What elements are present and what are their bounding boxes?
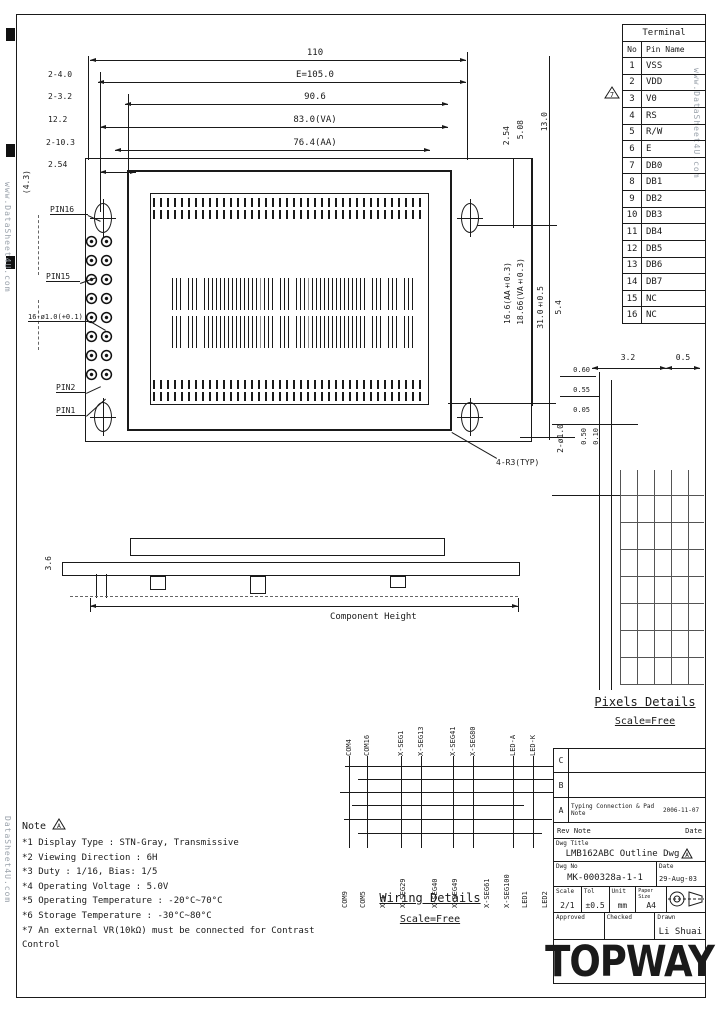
wire-line [344, 819, 552, 820]
note-ref-triangle-icon: 7 [604, 86, 620, 99]
revision-row-b: B [554, 773, 705, 797]
pin-hole-dia-label: 16-ø1.0(+0.1) [28, 313, 83, 321]
table-row: 16NC [623, 307, 705, 323]
tol-cell: Tol ±0.5 [582, 887, 610, 911]
wire-line [513, 756, 514, 848]
wire-label: X-SEG41 [449, 698, 457, 756]
table-row: 12DB5 [623, 241, 705, 258]
table-row: 9DB2 [623, 191, 705, 208]
wire-line [358, 833, 542, 834]
pin-no: 2 [623, 75, 642, 91]
note-item: *7 An external VR(10kΩ) must be connecte… [22, 924, 352, 953]
extension-line [448, 403, 556, 404]
note-item: *1 Display Type : STN-Gray, Transmissive [22, 836, 352, 851]
dimension-line [560, 396, 600, 397]
wiring-details-title: Wiring Details [360, 892, 500, 905]
dim-label: 0.05 [560, 406, 590, 414]
pixels-details-title: Pixels Details [585, 696, 705, 709]
wire-label: X-SEG13 [417, 698, 425, 756]
dim-label: 2-10.3 [46, 138, 75, 147]
terminal-table: Terminal No Pin Name 1VSS 2VDD 3V0 4RS 5… [622, 24, 706, 324]
notes-list: *1 Display Type : STN-Gray, Transmissive… [22, 836, 352, 953]
note-item: *3 Duty : 1/16, Bias: 1/5 [22, 865, 352, 880]
unit-label: Unit [612, 888, 626, 895]
paper-size-label: Paper Size [638, 888, 666, 900]
wire-line [367, 756, 368, 848]
pixel-grid-line [611, 380, 612, 690]
projection-cell [667, 887, 705, 911]
mounting-hole [94, 203, 112, 233]
character-row-1 [168, 278, 414, 310]
pin-name: VDD [642, 77, 662, 87]
dimension-line [592, 368, 666, 369]
third-angle-projection-icon [667, 889, 705, 909]
terminal-table-header: No Pin Name [623, 42, 705, 58]
drawn-cell: Drawn Li Shuai [655, 913, 705, 939]
dim-label: 12.2 [48, 115, 67, 124]
rev-date: 2006-11-07 [663, 807, 705, 814]
revision-row-a: A Typing Connection & Pad Note 2006-11-0… [554, 798, 705, 823]
wire-line [349, 756, 350, 848]
svg-text:7: 7 [610, 91, 614, 99]
pin-name: R/W [642, 127, 662, 137]
wire-label: COM4 [345, 698, 353, 756]
dwg-no-cell: Dwg No MK-000328a-1-1 [554, 862, 656, 886]
leader-line [46, 281, 80, 282]
pin-no: 9 [623, 191, 642, 207]
note-item: *2 Viewing Direction : 6H [22, 851, 352, 866]
rev-letter: B [554, 773, 569, 796]
note-item: *6 Storage Temperature : -30°C~80°C [22, 909, 352, 924]
svg-text:A: A [686, 852, 690, 859]
mounting-hole [461, 203, 479, 233]
pin16-label: PIN16 [50, 205, 74, 214]
paper-size-value: A4 [646, 901, 656, 910]
rev-note [569, 773, 705, 796]
wire-line [352, 805, 524, 806]
date-value: 29-Aug-03 [659, 875, 697, 883]
side-view-component [150, 576, 166, 590]
leader-line [50, 214, 88, 215]
wire-line [345, 766, 557, 767]
dim-label: 18.66(VA±0.3) [516, 258, 525, 325]
pin-name: DB3 [642, 210, 662, 220]
pin-no: 14 [623, 274, 642, 290]
centerline [70, 596, 518, 597]
pin-no: 5 [623, 125, 642, 141]
rev-note-header: Rev Note [557, 827, 591, 835]
pin-name: DB1 [642, 177, 662, 187]
side-view-component [390, 576, 406, 588]
zebra-stripes [153, 392, 424, 401]
paper-cell: Paper Size A4 [636, 887, 667, 911]
dim-label: 3.6 [44, 556, 53, 570]
dimension-line [100, 127, 448, 128]
rev-letter: C [554, 749, 569, 772]
checked-label: Checked [607, 914, 632, 921]
rev-note [569, 749, 705, 772]
dimension-line [90, 60, 466, 61]
dim-value: 83.0(VA) [255, 115, 375, 125]
dim-label: 31.0±0.5 [536, 286, 545, 329]
extension-line [38, 215, 39, 275]
pin-name: DB4 [642, 227, 662, 237]
drawn-name: Li Shuai [659, 927, 702, 937]
wire-label: LED-A [509, 698, 517, 756]
logo-row: TOPWAY [554, 940, 705, 983]
wire-label: X-SEG100 [503, 846, 511, 908]
dimension-line [532, 158, 533, 406]
pin-name: NC [642, 294, 657, 304]
extension-line [38, 300, 39, 350]
zebra-stripes [153, 210, 424, 219]
table-row: 11DB4 [623, 224, 705, 241]
scale-label: Scale [556, 888, 574, 895]
date-label: Date [659, 863, 673, 870]
registration-mark [6, 144, 15, 157]
pin-name: DB0 [642, 161, 662, 171]
pin-name: DB7 [642, 277, 662, 287]
pin-no: 10 [623, 208, 642, 224]
dim-label: 0.5 [666, 353, 700, 362]
dim-label: (4.3) [22, 170, 31, 194]
extension-line [477, 225, 557, 226]
wire-label: LED2 [541, 846, 549, 908]
table-row: 5R/W [623, 125, 705, 142]
table-row: 15NC [623, 291, 705, 308]
pin-name: DB5 [642, 244, 662, 254]
title-block: C B A Typing Connection & Pad Note 2006-… [553, 748, 706, 984]
dim-label: 2-3.2 [48, 92, 72, 101]
pin-no: 7 [623, 158, 642, 174]
pin-pads [84, 232, 114, 384]
note-item: *4 Operating Voltage : 5.0V [22, 880, 352, 895]
extension-line [88, 56, 89, 160]
pixel-grid-line [599, 372, 600, 690]
pin-no: 4 [623, 108, 642, 124]
revision-header: Rev Note Date [554, 823, 705, 839]
pin-name: DB6 [642, 260, 662, 270]
watermark: DataSheet4U.com [3, 816, 12, 946]
dim-label: 16.6(AA±0.3) [503, 262, 512, 324]
pin-name: NC [642, 310, 657, 320]
pin-no: 15 [623, 291, 642, 307]
wire-label: COM16 [363, 698, 371, 756]
leader-line [56, 415, 86, 416]
side-view-glass [130, 538, 445, 556]
pin15-label: PIN15 [46, 272, 70, 281]
wire-label: LED-K [529, 698, 537, 756]
extension-line [467, 52, 468, 160]
dimension-line [513, 158, 514, 228]
terminal-table-title: Terminal [623, 25, 705, 42]
dimension-line [98, 82, 466, 83]
pin-no: 6 [623, 141, 642, 157]
side-view-component [250, 576, 266, 594]
extension-line [518, 598, 519, 612]
scale-row: Scale 2/1 Tol ±0.5 Unit mm Paper Size A4 [554, 887, 705, 912]
wire-line [340, 792, 558, 793]
mounting-hole [461, 402, 479, 432]
dim-value: 90.6 [255, 92, 375, 102]
pin2-label: PIN2 [56, 383, 75, 392]
dim-label: 0.60 [560, 366, 590, 374]
col-no: No [623, 42, 642, 57]
table-row: 3V0 [623, 91, 705, 108]
dimension-line [552, 424, 638, 425]
dim-label: 13.0 [540, 112, 549, 131]
rev-letter: A [554, 798, 569, 822]
pin-name: V0 [642, 94, 657, 104]
dim-value: 110 [255, 48, 375, 58]
corner-radius-label: 4-R3(TYP) [496, 458, 539, 467]
side-view-pin [96, 574, 97, 598]
dim-label: 2.54 [48, 160, 67, 169]
pin-name: E [642, 144, 651, 154]
table-row: 2VDD [623, 75, 705, 92]
zebra-stripes [153, 198, 424, 207]
wire-line [358, 779, 556, 780]
revision-row-c: C [554, 749, 705, 773]
pin-no: 8 [623, 174, 642, 190]
dim-label: 2-4.0 [48, 70, 72, 79]
watermark: www.DataSheet4U.com [3, 182, 12, 342]
leader-line [28, 321, 92, 322]
dimension-line [115, 150, 430, 151]
pin-name: DB2 [642, 194, 662, 204]
pin-no: 12 [623, 241, 642, 257]
dwg-no: MK-000328a-1-1 [567, 873, 643, 883]
scale-value: 2/1 [560, 901, 574, 910]
extension-line [90, 598, 91, 612]
rev-note: Typing Connection & Pad Note [569, 803, 663, 817]
dim-label: 2-ø1.0 [556, 424, 565, 453]
character-row-2 [168, 316, 414, 348]
pin-no: 11 [623, 224, 642, 240]
dim-label: 0.55 [560, 386, 590, 394]
approved-cell: Approved [554, 913, 605, 939]
table-row: 14DB7 [623, 274, 705, 291]
pin-no: 16 [623, 307, 642, 323]
wire-label: X-SEG1 [397, 698, 405, 756]
pin1-label: PIN1 [56, 406, 75, 415]
rev-triangle-icon: A [681, 848, 693, 859]
dimension-line [125, 104, 448, 105]
svg-text:A: A [57, 822, 61, 830]
wire-line [473, 756, 474, 848]
date-cell: Date 29-Aug-03 [656, 862, 705, 886]
notes-heading-text: Note [22, 821, 46, 832]
pin-no: 3 [623, 91, 642, 107]
pin-name: RS [642, 111, 657, 121]
tol-label: Tol [584, 888, 595, 895]
notes-heading: Note A [22, 818, 66, 832]
dimension-line [666, 368, 700, 369]
pixel-grid [620, 470, 704, 685]
pixels-details-scale: Scale=Free [585, 716, 705, 727]
col-pin-name: Pin Name [642, 45, 685, 54]
dim-value: 76.4(AA) [255, 138, 375, 148]
tol-value: ±0.5 [585, 901, 604, 910]
wire-label: LED1 [521, 846, 529, 908]
table-row: 10DB3 [623, 208, 705, 225]
dim-label: 2.54 [502, 126, 511, 145]
extension-line [520, 437, 575, 438]
registration-mark [6, 28, 15, 41]
pin-no: 13 [623, 258, 642, 274]
wire-line [421, 756, 422, 848]
dim-value: E=105.0 [255, 70, 375, 80]
dim-label: 5.08 [516, 120, 525, 139]
wire-line [401, 756, 402, 848]
unit-cell: Unit mm [610, 887, 637, 911]
wiring-details-scale: Scale=Free [360, 914, 500, 925]
side-view-pcb [62, 562, 520, 576]
dwg-no-label: Dwg No [556, 863, 578, 870]
table-row: 6E [623, 141, 705, 158]
table-row: 8DB1 [623, 174, 705, 191]
table-row: 7DB0 [623, 158, 705, 175]
dwg-title: LMB162ABC Outline Dwg [566, 849, 680, 859]
wire-label: X-SEG80 [469, 698, 477, 756]
drawn-label: Drawn [657, 914, 675, 921]
dimension-line [90, 606, 518, 607]
zebra-stripes [153, 380, 424, 389]
drawing-sheet: www.DataSheet4U.com www.DataSheet4U.com … [0, 0, 720, 1012]
topway-logo: TOPWAY [545, 937, 714, 986]
note-ref-triangle-icon: A [52, 818, 66, 830]
dimension-line [549, 56, 550, 440]
side-view-pin [106, 574, 107, 598]
dwg-title-label: Dwg Title [556, 840, 589, 847]
dwg-no-row: Dwg No MK-000328a-1-1 Date 29-Aug-03 [554, 862, 705, 887]
dimension-line [560, 376, 596, 377]
pin-no: 1 [623, 58, 642, 74]
pin-name: VSS [642, 61, 662, 71]
dim-label: 0.10 [592, 428, 600, 445]
checked-cell: Checked [605, 913, 656, 939]
approved-label: Approved [556, 914, 585, 921]
table-row: 4RS [623, 108, 705, 125]
table-row: 1VSS [623, 58, 705, 75]
dim-label: 3.2 [598, 353, 658, 362]
scale-cell: Scale 2/1 [554, 887, 582, 911]
dwg-title-row: Dwg Title LMB162ABC Outline Dwg A [554, 839, 705, 862]
wire-line [533, 756, 534, 848]
rev-date-header: Date [685, 827, 702, 835]
component-height-label: Component Height [330, 612, 417, 622]
unit-value: mm [618, 901, 628, 910]
dim-label: 5.4 [554, 300, 563, 314]
leader-line [56, 392, 86, 393]
wire-line [453, 756, 454, 848]
table-row: 13DB6 [623, 258, 705, 275]
note-item: *5 Operating Temperature : -20°C~70°C [22, 894, 352, 909]
dim-label: 0.50 [580, 428, 588, 445]
